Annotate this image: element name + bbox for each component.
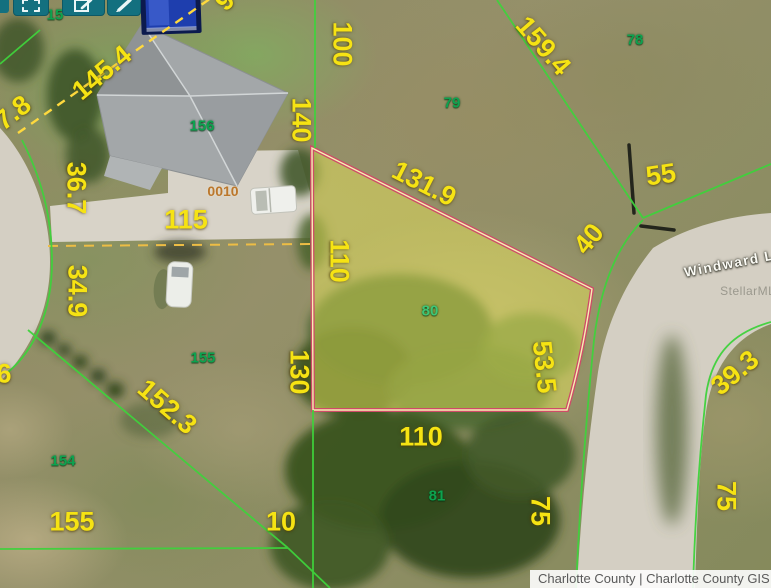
dim-label-110-south: 110 (399, 424, 443, 451)
road-cul-de-sac (0, 128, 50, 382)
toolbar-button-partial[interactable] (0, 0, 9, 13)
attribution-bar: Charlotte County | Charlotte County GIS (530, 570, 771, 588)
imagery-watermark: StellarMLS (720, 284, 771, 298)
dim-label-110-west: 110 (326, 239, 353, 283)
tree-line-along-road (656, 335, 688, 525)
marquee-select-button[interactable] (13, 0, 49, 16)
edit-note-icon (74, 0, 94, 12)
parcel-number-80: 80 (422, 304, 439, 319)
attribution-text: Charlotte County | Charlotte County GIS (538, 571, 770, 586)
dim-label-34-9: 34.9 (64, 265, 91, 318)
swimming-pool (140, 0, 201, 35)
parcel-number-81: 81 (429, 489, 446, 504)
parcel-number-154: 154 (50, 454, 75, 469)
dim-label-75-east: 75 (713, 481, 740, 511)
marquee-select-icon (22, 0, 40, 12)
map-overlay (0, 0, 771, 588)
dim-label-155: 155 (49, 509, 94, 536)
site-address-number: 0010 (207, 184, 238, 198)
parcel-number-155: 155 (190, 351, 215, 366)
parcel-number-79: 79 (444, 96, 461, 111)
parcel-number-partial-15: 15 (47, 8, 64, 23)
parcel-number-78: 78 (627, 33, 644, 48)
dim-label-55: 55 (644, 160, 678, 191)
dim-label-6: 6 (0, 361, 12, 388)
parked-van (153, 261, 193, 311)
dim-label-130: 130 (286, 349, 313, 394)
dim-label-36-7: 36.7 (63, 162, 90, 215)
draw-pencil-button[interactable] (107, 0, 141, 16)
dim-label-10: 10 (266, 509, 296, 536)
dim-label-115: 115 (164, 207, 208, 234)
dim-label-100: 100 (329, 21, 356, 66)
dim-label-140: 140 (288, 97, 315, 142)
dim-label-53-5: 53.5 (528, 339, 560, 394)
dim-label-75-south: 75 (527, 496, 554, 526)
parcel-number-156: 156 (189, 119, 214, 134)
edit-note-button[interactable] (62, 0, 105, 16)
gis-map-viewport[interactable]: 145.4 7.8 9 36.7 34.9 115 6 152.3 155 10… (0, 0, 771, 588)
draw-pencil-icon (115, 0, 133, 12)
pickup-truck (250, 185, 297, 214)
